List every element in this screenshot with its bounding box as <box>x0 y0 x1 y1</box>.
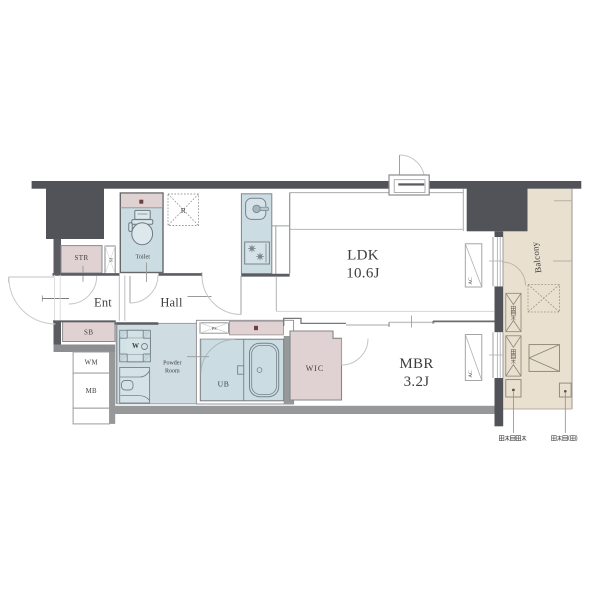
svg-text:WIC: WIC <box>306 364 325 373</box>
svg-text:Toilet: Toilet <box>136 254 151 261</box>
svg-text:PS: PS <box>212 326 217 331</box>
svg-text:Hall: Hall <box>160 296 183 310</box>
svg-text:3.2J: 3.2J <box>404 374 430 390</box>
svg-text:WM: WM <box>85 360 98 367</box>
svg-text:MB: MB <box>86 388 97 395</box>
svg-text:W: W <box>132 342 139 350</box>
svg-text:10.6J: 10.6J <box>346 266 380 282</box>
svg-text:R: R <box>181 206 186 215</box>
svg-text:Room: Room <box>165 369 180 375</box>
svg-text:MBR: MBR <box>399 356 433 372</box>
svg-text:SB: SB <box>84 329 94 337</box>
svg-text:UB: UB <box>218 379 230 388</box>
svg-text:STR: STR <box>74 254 88 262</box>
svg-text:PS: PS <box>108 258 112 262</box>
svg-text:Powder: Powder <box>163 361 181 367</box>
svg-text:AC: AC <box>468 370 474 378</box>
svg-text:AC: AC <box>468 277 474 285</box>
svg-text:Ent: Ent <box>94 296 112 310</box>
svg-text:LDK: LDK <box>347 248 379 264</box>
